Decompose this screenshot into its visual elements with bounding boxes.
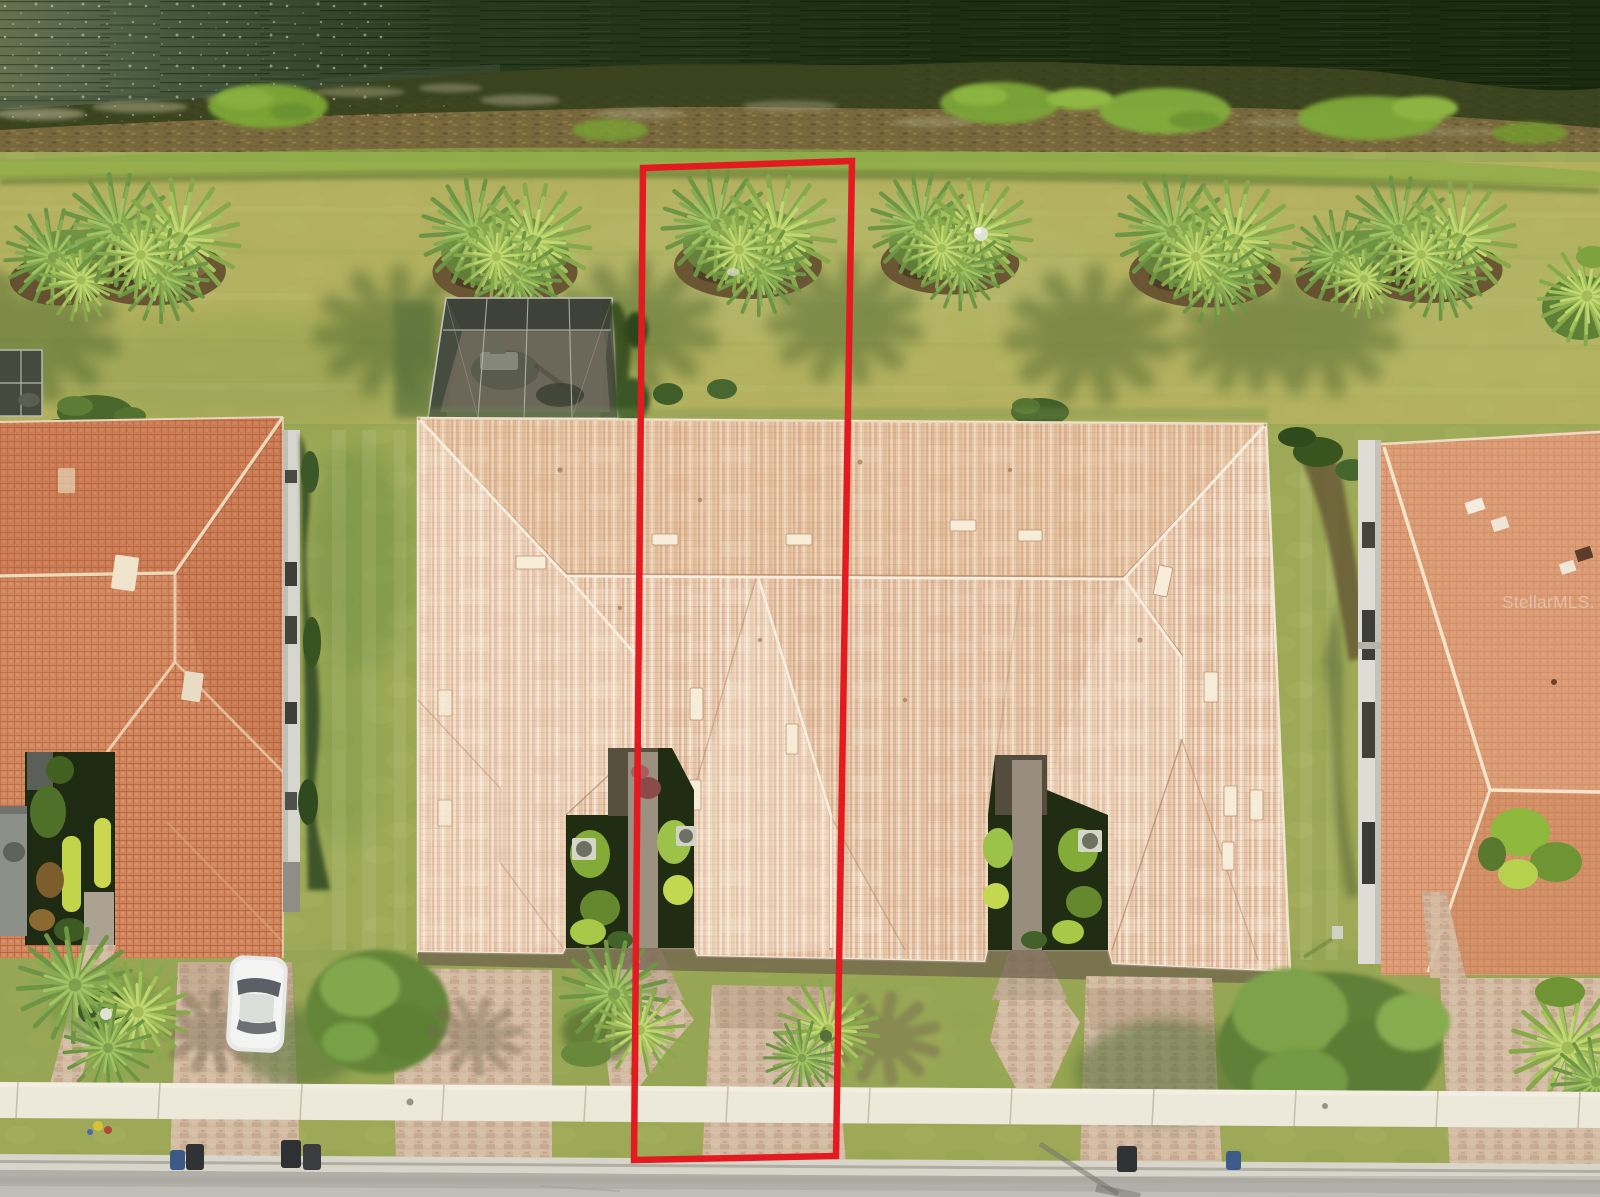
svg-text:StellarMLS.: StellarMLS. (1502, 592, 1595, 612)
